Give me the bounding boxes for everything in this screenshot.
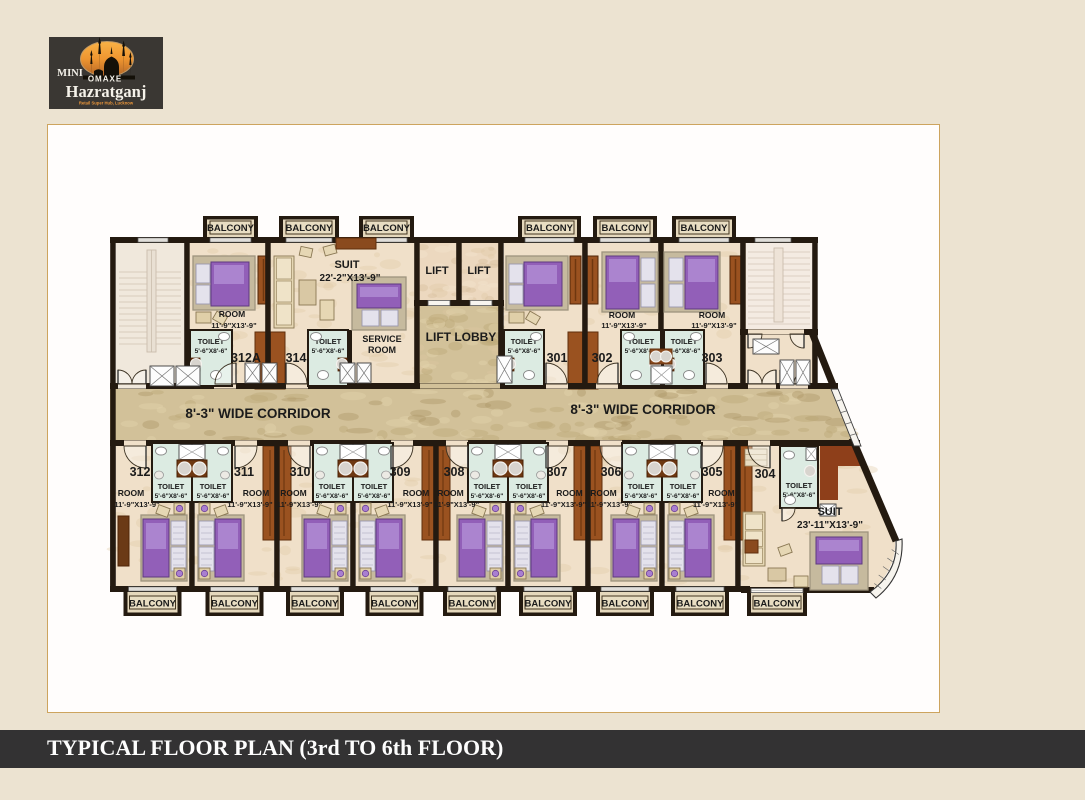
svg-text:5'-6"X8'-6": 5'-6"X8'-6" xyxy=(358,493,391,500)
svg-text:BALCONY: BALCONY xyxy=(292,599,340,610)
svg-text:BALCONY: BALCONY xyxy=(602,599,650,610)
svg-text:ROOM: ROOM xyxy=(708,488,734,498)
svg-text:11'-9"X13'-9": 11'-9"X13'-9" xyxy=(227,500,273,509)
svg-text:22'-2"X13'-9": 22'-2"X13'-9" xyxy=(320,273,381,284)
svg-text:5'-6"X8'-6": 5'-6"X8'-6" xyxy=(155,493,188,500)
svg-text:305: 305 xyxy=(702,465,723,479)
svg-text:312A: 312A xyxy=(231,351,261,365)
svg-text:312: 312 xyxy=(130,465,151,479)
svg-text:ROOM: ROOM xyxy=(556,488,582,498)
svg-text:TOILET: TOILET xyxy=(670,482,697,491)
svg-text:309: 309 xyxy=(390,465,411,479)
svg-text:BALCONY: BALCONY xyxy=(526,223,574,234)
svg-text:314: 314 xyxy=(286,351,307,365)
svg-text:BALCONY: BALCONY xyxy=(286,223,334,234)
svg-text:5'-6"X8'-6": 5'-6"X8'-6" xyxy=(667,493,700,500)
svg-text:303: 303 xyxy=(702,351,723,365)
svg-text:TOILET: TOILET xyxy=(200,482,227,491)
svg-text:BALCONY: BALCONY xyxy=(681,223,729,234)
svg-text:TOILET: TOILET xyxy=(628,482,655,491)
svg-text:BALCONY: BALCONY xyxy=(211,599,259,610)
svg-text:11'-9"X13'-9": 11'-9"X13'-9" xyxy=(277,500,323,509)
svg-text:ROOM: ROOM xyxy=(243,488,269,498)
svg-text:8'-3" WIDE CORRIDOR: 8'-3" WIDE CORRIDOR xyxy=(570,402,716,417)
svg-text:302: 302 xyxy=(592,351,613,365)
svg-text:11'-9"X13'-9": 11'-9"X13'-9" xyxy=(693,500,739,509)
svg-text:5'-6"X8'-6": 5'-6"X8'-6" xyxy=(195,348,228,355)
svg-text:Retail Super Hub, Lucknow: Retail Super Hub, Lucknow xyxy=(79,101,134,106)
svg-text:11'-9"X13'-9": 11'-9"X13'-9" xyxy=(114,500,160,509)
svg-text:23'-11"X13'-9": 23'-11"X13'-9" xyxy=(797,520,863,531)
svg-text:SUIT: SUIT xyxy=(817,506,842,518)
svg-text:5'-6"X8'-6": 5'-6"X8'-6" xyxy=(508,348,541,355)
svg-text:11'-9"X13'-9": 11'-9"X13'-9" xyxy=(601,321,647,330)
svg-text:ROOM: ROOM xyxy=(219,309,245,319)
svg-text:SERVICE: SERVICE xyxy=(362,334,401,344)
svg-text:308: 308 xyxy=(444,465,465,479)
svg-text:11'-9"X13'-9": 11'-9"X13'-9" xyxy=(691,321,737,330)
svg-text:BALCONY: BALCONY xyxy=(207,223,255,234)
svg-text:11'-9"X13'-9": 11'-9"X13'-9" xyxy=(387,500,433,509)
svg-text:5'-6"X8'-6": 5'-6"X8'-6" xyxy=(312,348,345,355)
svg-text:BALCONY: BALCONY xyxy=(129,599,177,610)
svg-text:ROOM: ROOM xyxy=(368,345,396,355)
svg-text:311: 311 xyxy=(234,465,254,479)
svg-text:BALCONY: BALCONY xyxy=(525,599,573,610)
svg-text:11'-9"X13'-9": 11'-9"X13'-9" xyxy=(587,500,633,509)
svg-text:307: 307 xyxy=(547,465,568,479)
svg-text:ROOM: ROOM xyxy=(280,488,306,498)
svg-text:LIFT: LIFT xyxy=(425,265,448,277)
svg-text:Hazratganj: Hazratganj xyxy=(66,82,147,101)
svg-text:5'-6"X8'-6": 5'-6"X8'-6" xyxy=(197,493,230,500)
svg-text:BALCONY: BALCONY xyxy=(754,599,802,610)
svg-text:306: 306 xyxy=(601,465,622,479)
svg-text:ROOM: ROOM xyxy=(699,310,725,320)
svg-text:304: 304 xyxy=(755,467,776,481)
svg-text:TOILET: TOILET xyxy=(319,482,346,491)
svg-text:8'-3" WIDE CORRIDOR: 8'-3" WIDE CORRIDOR xyxy=(185,406,331,421)
svg-text:TOILET: TOILET xyxy=(474,482,501,491)
svg-text:BALCONY: BALCONY xyxy=(449,599,497,610)
svg-text:5'-6"X8'-6": 5'-6"X8'-6" xyxy=(625,493,658,500)
svg-text:LIFT: LIFT xyxy=(467,265,490,277)
svg-text:5'-6"X8'-6": 5'-6"X8'-6" xyxy=(316,493,349,500)
svg-text:5'-6"X8'-6": 5'-6"X8'-6" xyxy=(471,493,504,500)
svg-text:MINI: MINI xyxy=(57,68,83,79)
svg-text:ROOM: ROOM xyxy=(403,488,429,498)
svg-text:310: 310 xyxy=(290,465,311,479)
svg-text:301: 301 xyxy=(547,351,568,365)
svg-text:BALCONY: BALCONY xyxy=(371,599,419,610)
svg-text:TOILET: TOILET xyxy=(158,482,185,491)
svg-text:ROOM: ROOM xyxy=(118,488,144,498)
svg-text:ROOM: ROOM xyxy=(437,488,463,498)
svg-text:5'-6"X8'-6": 5'-6"X8'-6" xyxy=(513,493,546,500)
svg-text:TOILET: TOILET xyxy=(786,481,813,490)
svg-text:BALCONY: BALCONY xyxy=(677,599,725,610)
svg-text:BALCONY: BALCONY xyxy=(602,223,650,234)
svg-text:SUIT: SUIT xyxy=(334,259,359,271)
svg-text:LIFT LOBBY: LIFT LOBBY xyxy=(426,330,497,344)
svg-text:ROOM: ROOM xyxy=(590,488,616,498)
svg-text:TOILET: TOILET xyxy=(516,482,543,491)
svg-text:11'-9"X13'-9": 11'-9"X13'-9" xyxy=(211,321,257,330)
svg-text:ROOM: ROOM xyxy=(609,310,635,320)
svg-text:BALCONY: BALCONY xyxy=(363,223,411,234)
svg-text:11'-9"X13'-9": 11'-9"X13'-9" xyxy=(541,500,587,509)
svg-text:11'-9"X13'-9": 11'-9"X13'-9" xyxy=(434,500,480,509)
svg-text:TOILET: TOILET xyxy=(361,482,388,491)
